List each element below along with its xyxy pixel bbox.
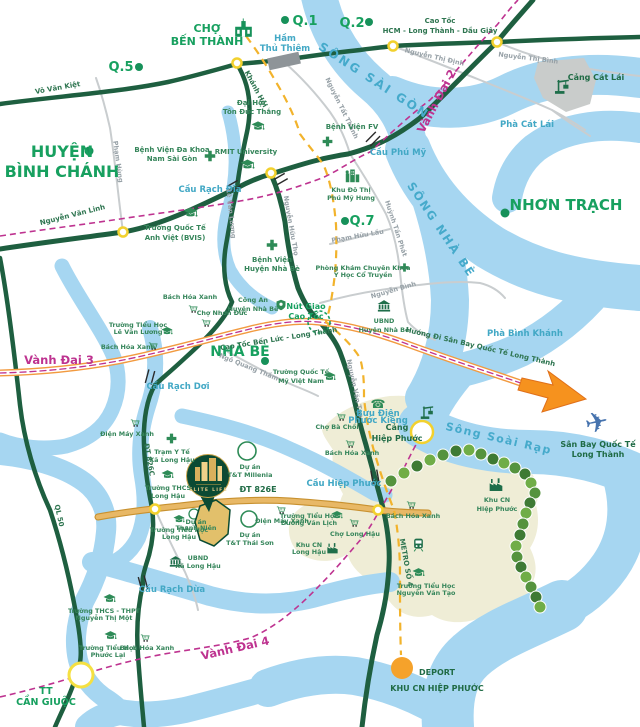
pin-tt-millenia [238, 442, 256, 460]
bvis-label: Trường Quốc Tế [144, 223, 206, 232]
bhx-5-label: Bách Hóa Xanh [325, 449, 380, 457]
cart-icon-bhx-4 [141, 635, 149, 642]
creek-rach-dua [92, 562, 390, 604]
cho-ba-choi-label: Chợ Bà Chồi [315, 423, 358, 431]
svg-text:Anh Việt (BVIS): Anh Việt (BVIS) [145, 234, 206, 242]
cau-hiep-phuoc-label: Cầu Hiệp Phước [306, 478, 381, 489]
svg-text:Hiệp Phước: Hiệp Phước [477, 505, 518, 513]
dt-826e-label: ĐT 826E [239, 485, 276, 494]
ubnd-lh-label: UBND [188, 554, 209, 562]
svg-text:Long Hậu: Long Hậu [151, 492, 185, 500]
svg-text:Thủ Thiêm: Thủ Thiêm [260, 43, 310, 54]
svg-text:Phú Mỹ Hưng: Phú Mỹ Hưng [327, 194, 375, 202]
dh-tdt-label: Đại Học [237, 99, 267, 107]
q1-label: Q.1 [292, 14, 317, 29]
svg-text:KHU CN HIỆP PHƯỚC: KHU CN HIỆP PHƯỚC [390, 682, 484, 693]
cang-hiep-phuoc-label: Cảng [386, 422, 409, 432]
elite-life-label: ELITE LIFE [189, 487, 228, 493]
nguyen-van-linh-label: Nguyễn Văn Linh [39, 202, 106, 227]
bv-nam-sai-gon-label: Bệnh Viện Đa Khoa [134, 146, 210, 154]
map-canvas: ☎ ✈ ELITE LIFE CHỢ BẾN THÀNH Q.1 Q.2 Q.5 [0, 0, 640, 727]
ubnd-nha-be-label: UBND [374, 317, 395, 325]
cart-icon-cho-nhon-duc [202, 320, 210, 327]
grad-icon-tdt [252, 121, 265, 129]
svg-text:Lê Văn Lương: Lê Văn Lương [114, 328, 163, 336]
pham-huu-lau-label: Phạm Hữu Lầu [331, 227, 385, 244]
node-ben-thanh [233, 59, 242, 68]
cang-cat-lai-label: Cảng Cát Lái [568, 72, 625, 82]
building-icon-pmh [346, 169, 360, 182]
vanh-dai-3-label: Vành Đai 3 [24, 353, 94, 367]
tram-y-te-label: Trạm Y Tế [154, 447, 190, 456]
tt-thai-son-label: Dự án [240, 531, 261, 539]
svg-text:BÌNH CHÁNH: BÌNH CHÁNH [5, 162, 120, 181]
cau-rach-doi-label: Cầu Rạch Dơi [146, 381, 209, 392]
vanh-dai-4-label: Vành Đai 4 [200, 633, 271, 662]
svg-text:Mỹ Việt Nam: Mỹ Việt Nam [278, 377, 324, 385]
bv-nha-be-label: Bệnh Viện [252, 256, 292, 264]
node-826e-east [374, 506, 383, 515]
river-inlet-right [507, 126, 640, 198]
deport-circle [391, 657, 413, 679]
bank-icon-ubnd-nha-be [378, 300, 391, 311]
cho-lh-label: Chợ Long Hậu [330, 530, 380, 538]
deport-label: DEPORT [419, 668, 456, 677]
node-nvl-west [119, 228, 128, 237]
nguyen-thi-dinh-label: Nguyễn Thị Định [404, 45, 466, 68]
san-bay-label: Sân Bay Quốc Tế [560, 439, 636, 449]
svg-text:Nguyễn Thị Một: Nguyễn Thị Một [76, 613, 133, 622]
svg-text:Huyện Nhà Bè: Huyện Nhà Bè [244, 265, 300, 273]
svg-text:T&T Millenia: T&T Millenia [228, 471, 273, 479]
cau-rach-dua-label: Cầu Rạch Dừa [139, 584, 205, 595]
pha-cat-lai-label: Phà Cát Lái [500, 120, 554, 130]
khu-do-thi-pmh-label: Khu Đô Thị [331, 186, 370, 194]
tt-can-giuoc-label: TT [39, 686, 53, 697]
grad-icon-thcs-lh [162, 470, 174, 478]
cau-phu-my-label: Cầu Phú Mỹ [370, 147, 427, 158]
kcn-hp-label: Khu CN [484, 496, 510, 504]
mvn-label: Trường Quốc Tế [273, 367, 330, 376]
node-ntd [389, 42, 398, 51]
svg-text:T&T Thái Sơn: T&T Thái Sơn [226, 539, 274, 547]
airport-arrow [518, 371, 586, 412]
svg-text:Dương Văn Lịch: Dương Văn Lịch [281, 519, 338, 527]
nhon-trach-label: NHƠN TRẠCH [510, 196, 623, 214]
svg-text:Xã Long Hậu: Xã Long Hậu [149, 456, 195, 464]
rmit-label: RMIT University [215, 148, 278, 156]
svg-text:Phước Lại: Phước Lại [91, 651, 126, 659]
bhx-3-label: Bách Hóa Xanh [386, 512, 441, 520]
svg-text:Long Hậu: Long Hậu [162, 533, 196, 541]
airplane-icon: ✈ [582, 404, 612, 441]
grad-icon-th-lh [174, 515, 185, 522]
svg-text:BẾN THÀNH: BẾN THÀNH [171, 33, 244, 48]
bv-fv-label: Bệnh Viện FV [326, 123, 379, 131]
ring-can-giuoc [69, 663, 93, 687]
thu-thiem-tunnel [267, 52, 301, 70]
svg-text:Hiệp Phước: Hiệp Phước [372, 433, 423, 443]
cao-toc-hlg-label: Cao Tốc [425, 16, 456, 25]
cross-icon-fv [323, 137, 333, 147]
nut-giao-label: Nút Giao [286, 302, 326, 311]
node-hlg [493, 38, 502, 47]
cho-ben-thanh-label: CHỢ [194, 22, 221, 35]
pha-binh-khanh-label: Phà Bình Khánh [487, 329, 563, 339]
svg-text:Tôn Đức Thắng: Tôn Đức Thắng [223, 107, 281, 116]
svg-text:Cao Tốc: Cao Tốc [288, 311, 324, 321]
location-map: ☎ ✈ ELITE LIFE CHỢ BẾN THÀNH Q.1 Q.2 Q.5 [0, 0, 640, 727]
svg-text:Huyện Nhà Bè: Huyện Nhà Bè [359, 326, 410, 334]
bhx-4-label: Bách Hóa Xanh [120, 644, 175, 652]
bhx-2-label: Bách Hóa Xanh [101, 343, 156, 351]
svg-text:CẦN GIUỘC: CẦN GIUỘC [16, 695, 76, 708]
svg-text:Xã Long Hậu: Xã Long Hậu [175, 562, 221, 570]
cong-an-label: Công An [238, 296, 268, 304]
river-bottom-center [268, 675, 448, 712]
nguyen-thi-binh-label: Nguyễn Thị Bình [498, 49, 559, 65]
ham-thu-thiem-label: Hầm [274, 33, 296, 44]
grad-icon-ntm [104, 594, 116, 602]
cross-icon-bv-nha-be [267, 240, 278, 251]
node-nvl-east [267, 169, 276, 178]
svg-text:Nguyễn Văn Tạo: Nguyễn Văn Tạo [397, 588, 456, 597]
dmx-1-label: Điện Máy Xanh [100, 430, 154, 438]
bhx-1-label: Bách Hóa Xanh [163, 293, 218, 301]
svg-text:Nam Sài Gòn: Nam Sài Gòn [147, 155, 197, 163]
cho-nhon-duc-label: Chợ Nhơn Đức [197, 309, 248, 317]
creek-west-band [0, 455, 120, 712]
q2-label: Q.2 [339, 16, 364, 31]
tt-millenia-label: Dự án [240, 463, 261, 471]
q7-label: Q.7 [349, 214, 374, 229]
node-826e-west [151, 505, 160, 514]
grad-icon-phuoc-lai [105, 631, 117, 639]
thcs-lh-label: Trường THCS [145, 484, 192, 492]
svg-text:Y Học Cổ Truyền: Y Học Cổ Truyền [333, 270, 393, 279]
svg-text:Long Thành: Long Thành [572, 450, 625, 459]
svg-text:Long Hậu: Long Hậu [292, 548, 326, 556]
svg-text:HCM - Long Thành - Dầu Giây: HCM - Long Thành - Dầu Giây [383, 27, 498, 35]
q5-label: Q.5 [108, 60, 133, 75]
cross-icon-tram-y-te [167, 434, 177, 444]
huyen-binh-chanh-label: HUYỆN [31, 141, 93, 161]
